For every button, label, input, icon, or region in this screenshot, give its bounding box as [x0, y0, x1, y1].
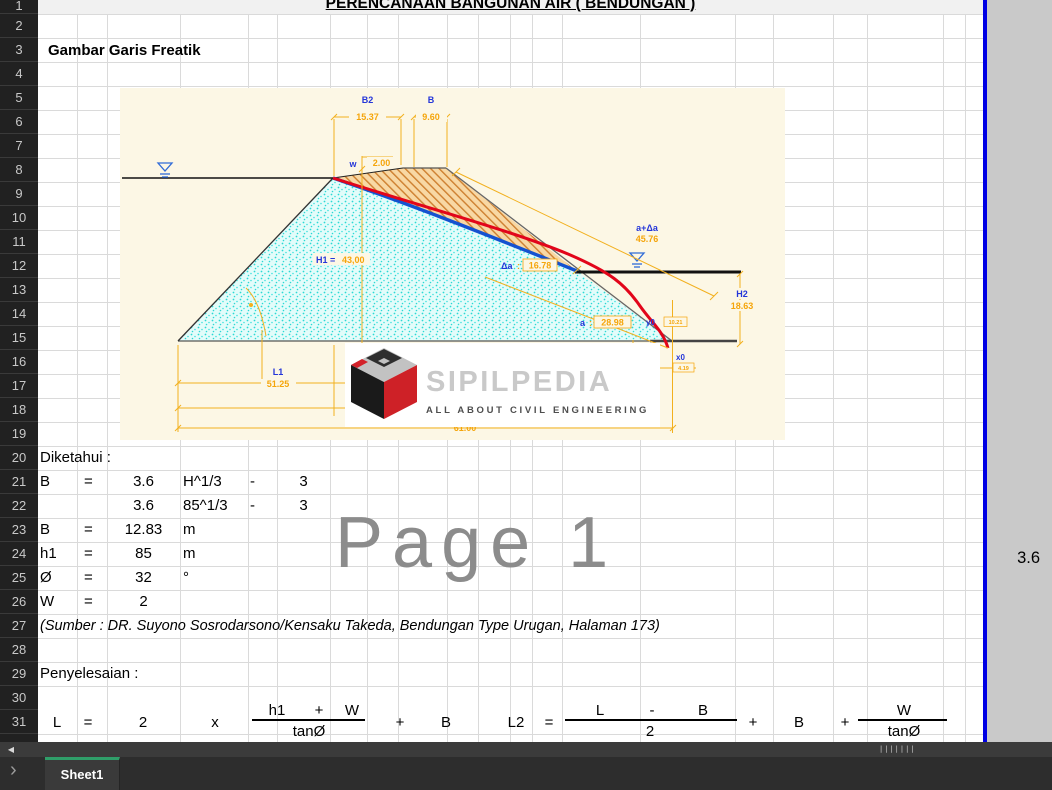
row-header-3[interactable]: 3	[0, 38, 38, 62]
w-value: 2.00	[373, 158, 391, 168]
formula-times: x	[211, 715, 219, 730]
frac3-den: tanØ	[888, 724, 921, 739]
row-header-8[interactable]: 8	[0, 158, 38, 182]
cell-C25[interactable]: 32	[107, 566, 180, 590]
outside-print-area: 3.6	[987, 0, 1052, 742]
h1-label: H1 =	[316, 255, 335, 265]
x0-value: 4.19	[678, 366, 689, 372]
b-value: 9.60	[422, 112, 440, 122]
cell-B24[interactable]: =	[84, 542, 105, 566]
row-header-23[interactable]: 23	[0, 518, 38, 542]
column-gridline	[833, 0, 834, 742]
sipilpedia-logo: SIPILPEDIA ALL ABOUT CIVIL ENGINEERING	[345, 343, 660, 427]
title-cell[interactable]: PERENCANAAN BANGUNAN AIR ( BENDUNGAN )	[38, 0, 983, 14]
row-header-16[interactable]: 16	[0, 350, 38, 374]
row-header-5[interactable]: 5	[0, 86, 38, 110]
row-header-28[interactable]: 28	[0, 638, 38, 662]
formula-plus-b: +	[749, 715, 758, 730]
row-header-1[interactable]: 1	[0, 0, 38, 14]
row-header-column: 1234567891011121314151617181920212223242…	[0, 0, 38, 742]
sipilpedia-wordmark: SIPILPEDIA	[426, 366, 612, 398]
h2-value: 18.63	[731, 301, 754, 311]
delta-a-colon: :	[517, 261, 520, 271]
cell-B23[interactable]: =	[84, 518, 105, 542]
cell-E22[interactable]: -	[250, 494, 275, 518]
row-header-18[interactable]: 18	[0, 398, 38, 422]
cell-F22[interactable]: 3	[277, 494, 330, 518]
cell-A21[interactable]: B	[40, 470, 76, 494]
page-watermark: Page 1	[335, 507, 617, 579]
cell-C23[interactable]: 12.83	[107, 518, 180, 542]
frac2-den: 2	[646, 724, 654, 739]
cell-A25[interactable]: Ø	[40, 566, 76, 590]
cell-D25[interactable]: °	[183, 566, 246, 590]
horizontal-scrollbar[interactable]: ◀ |||||||	[0, 742, 1052, 757]
a-value: 28.98	[601, 318, 624, 328]
a-plus-delta-a-label: a+Δa	[636, 223, 659, 233]
row-header-22[interactable]: 22	[0, 494, 38, 518]
row-header-24[interactable]: 24	[0, 542, 38, 566]
frac3-num: W	[897, 703, 911, 718]
frac2-num-l: L	[596, 703, 604, 718]
spreadsheet-window: PERENCANAAN BANGUNAN AIR ( BENDUNGAN ) G…	[0, 0, 1052, 790]
cell-A29[interactable]: Penyelesaian :	[40, 662, 138, 686]
y0-label: y0	[646, 318, 655, 327]
frac1-num-h1: h1	[269, 703, 286, 718]
cell-C24[interactable]: 85	[107, 542, 180, 566]
row-header-14[interactable]: 14	[0, 302, 38, 326]
formula-eq2: =	[545, 715, 554, 730]
l1-label: L1	[273, 367, 284, 377]
section-heading[interactable]: Gambar Garis Freatik	[48, 40, 201, 62]
row-header-2[interactable]: 2	[0, 14, 38, 38]
row-header-12[interactable]: 12	[0, 254, 38, 278]
sheet-tab-label: Sheet1	[45, 760, 119, 789]
frac3-bar	[858, 719, 947, 721]
cell-A20[interactable]: Diketahui :	[40, 446, 111, 470]
x0-label: x0	[676, 353, 685, 362]
sheet-tab-bar: › Sheet1	[0, 757, 1052, 790]
row-header-26[interactable]: 26	[0, 590, 38, 614]
cell-C22[interactable]: 3.6	[107, 494, 180, 518]
formula-coef: 2	[139, 715, 147, 730]
y0-value: 10.21	[669, 320, 683, 326]
outside-cell-value[interactable]: 3.6	[1017, 549, 1040, 568]
cell-B21[interactable]: =	[84, 470, 105, 494]
row-header-13[interactable]: 13	[0, 278, 38, 302]
row-header-17[interactable]: 17	[0, 374, 38, 398]
h1-value: 43,00	[342, 255, 365, 265]
sipilpedia-tagline: ALL ABOUT CIVIL ENGINEERING	[426, 405, 649, 416]
cell-E21[interactable]: -	[250, 470, 275, 494]
frac2-num-b: B	[698, 703, 708, 718]
delta-a-label: Δa	[501, 261, 513, 271]
column-gridline	[965, 0, 966, 742]
cell-C21[interactable]: 3.6	[107, 470, 180, 494]
tab-nav-chevron-icon[interactable]: ›	[10, 759, 17, 782]
frac1-num-w: W	[345, 703, 359, 718]
formula-plus-c: +	[841, 715, 850, 730]
frac2-bar	[565, 719, 737, 721]
dam-freatik-diagram[interactable]: B2 15.37 B 9.60 w 2.00 H1 = 43,00 Δa : 1…	[120, 88, 785, 440]
cell-C26[interactable]: 2	[107, 590, 180, 614]
formula-lhs2: L2	[508, 715, 525, 730]
formula-var-b2: B	[794, 715, 804, 730]
cell-A26[interactable]: W	[40, 590, 76, 614]
row-header-27[interactable]: 27	[0, 614, 38, 638]
b2-label: B2	[362, 95, 374, 105]
cell-D22[interactable]: 85^1/3	[183, 494, 246, 518]
a-colon: :	[589, 318, 592, 328]
scroll-left-icon[interactable]: ◀	[3, 744, 19, 755]
w-label: w	[348, 159, 357, 169]
a-plus-delta-a-value: 45.76	[636, 234, 659, 244]
frac1-num-plus: +	[315, 703, 324, 718]
cell-A24[interactable]: h1	[40, 542, 76, 566]
row-header-15[interactable]: 15	[0, 326, 38, 350]
column-gridline	[943, 0, 944, 742]
cell-A23[interactable]: B	[40, 518, 76, 542]
cell-B25[interactable]: =	[84, 566, 105, 590]
cell-D21[interactable]: H^1/3	[183, 470, 246, 494]
formula-lhs: L	[53, 715, 61, 730]
l1-value: 51.25	[267, 379, 290, 389]
row-header-31[interactable]: 31	[0, 710, 38, 734]
cell-F21[interactable]: 3	[277, 470, 330, 494]
row-header-7[interactable]: 7	[0, 134, 38, 158]
slope-angle-marker	[249, 303, 253, 307]
cell-D23[interactable]: m	[183, 518, 246, 542]
b-label: B	[428, 95, 435, 105]
row-header-29[interactable]: 29	[0, 662, 38, 686]
row-header-10[interactable]: 10	[0, 206, 38, 230]
h2-label: H2	[736, 289, 748, 299]
row-header-19[interactable]: 19	[0, 422, 38, 446]
page-title: PERENCANAAN BANGUNAN AIR ( BENDUNGAN )	[38, 0, 983, 13]
cell-B26[interactable]: =	[84, 590, 105, 614]
cell-A27[interactable]: (Sumber : DR. Suyono Sosrodarsono/Kensak…	[40, 614, 660, 638]
row-header-4[interactable]: 4	[0, 62, 38, 86]
row-header-20[interactable]: 20	[0, 446, 38, 470]
row-header-21[interactable]: 21	[0, 470, 38, 494]
b2-value: 15.37	[356, 112, 379, 122]
sheet-tab-sheet1[interactable]: Sheet1	[45, 757, 120, 790]
cell-D24[interactable]: m	[183, 542, 246, 566]
frac2-num-minus: -	[650, 703, 655, 718]
row-header-9[interactable]: 9	[0, 182, 38, 206]
column-gridline	[867, 0, 868, 742]
frac1-bar	[252, 719, 365, 721]
row-header-30[interactable]: 30	[0, 686, 38, 710]
formula-var-b: B	[441, 715, 451, 730]
scrollbar-grip-icon[interactable]: |||||||	[879, 742, 916, 757]
delta-a-value: 16.78	[529, 261, 552, 271]
row-header-25[interactable]: 25	[0, 566, 38, 590]
frac1-den: tanØ	[293, 724, 326, 739]
formula-eq: =	[84, 715, 93, 730]
formula-plus-a: +	[396, 715, 405, 730]
row-header-6[interactable]: 6	[0, 110, 38, 134]
row-header-11[interactable]: 11	[0, 230, 38, 254]
